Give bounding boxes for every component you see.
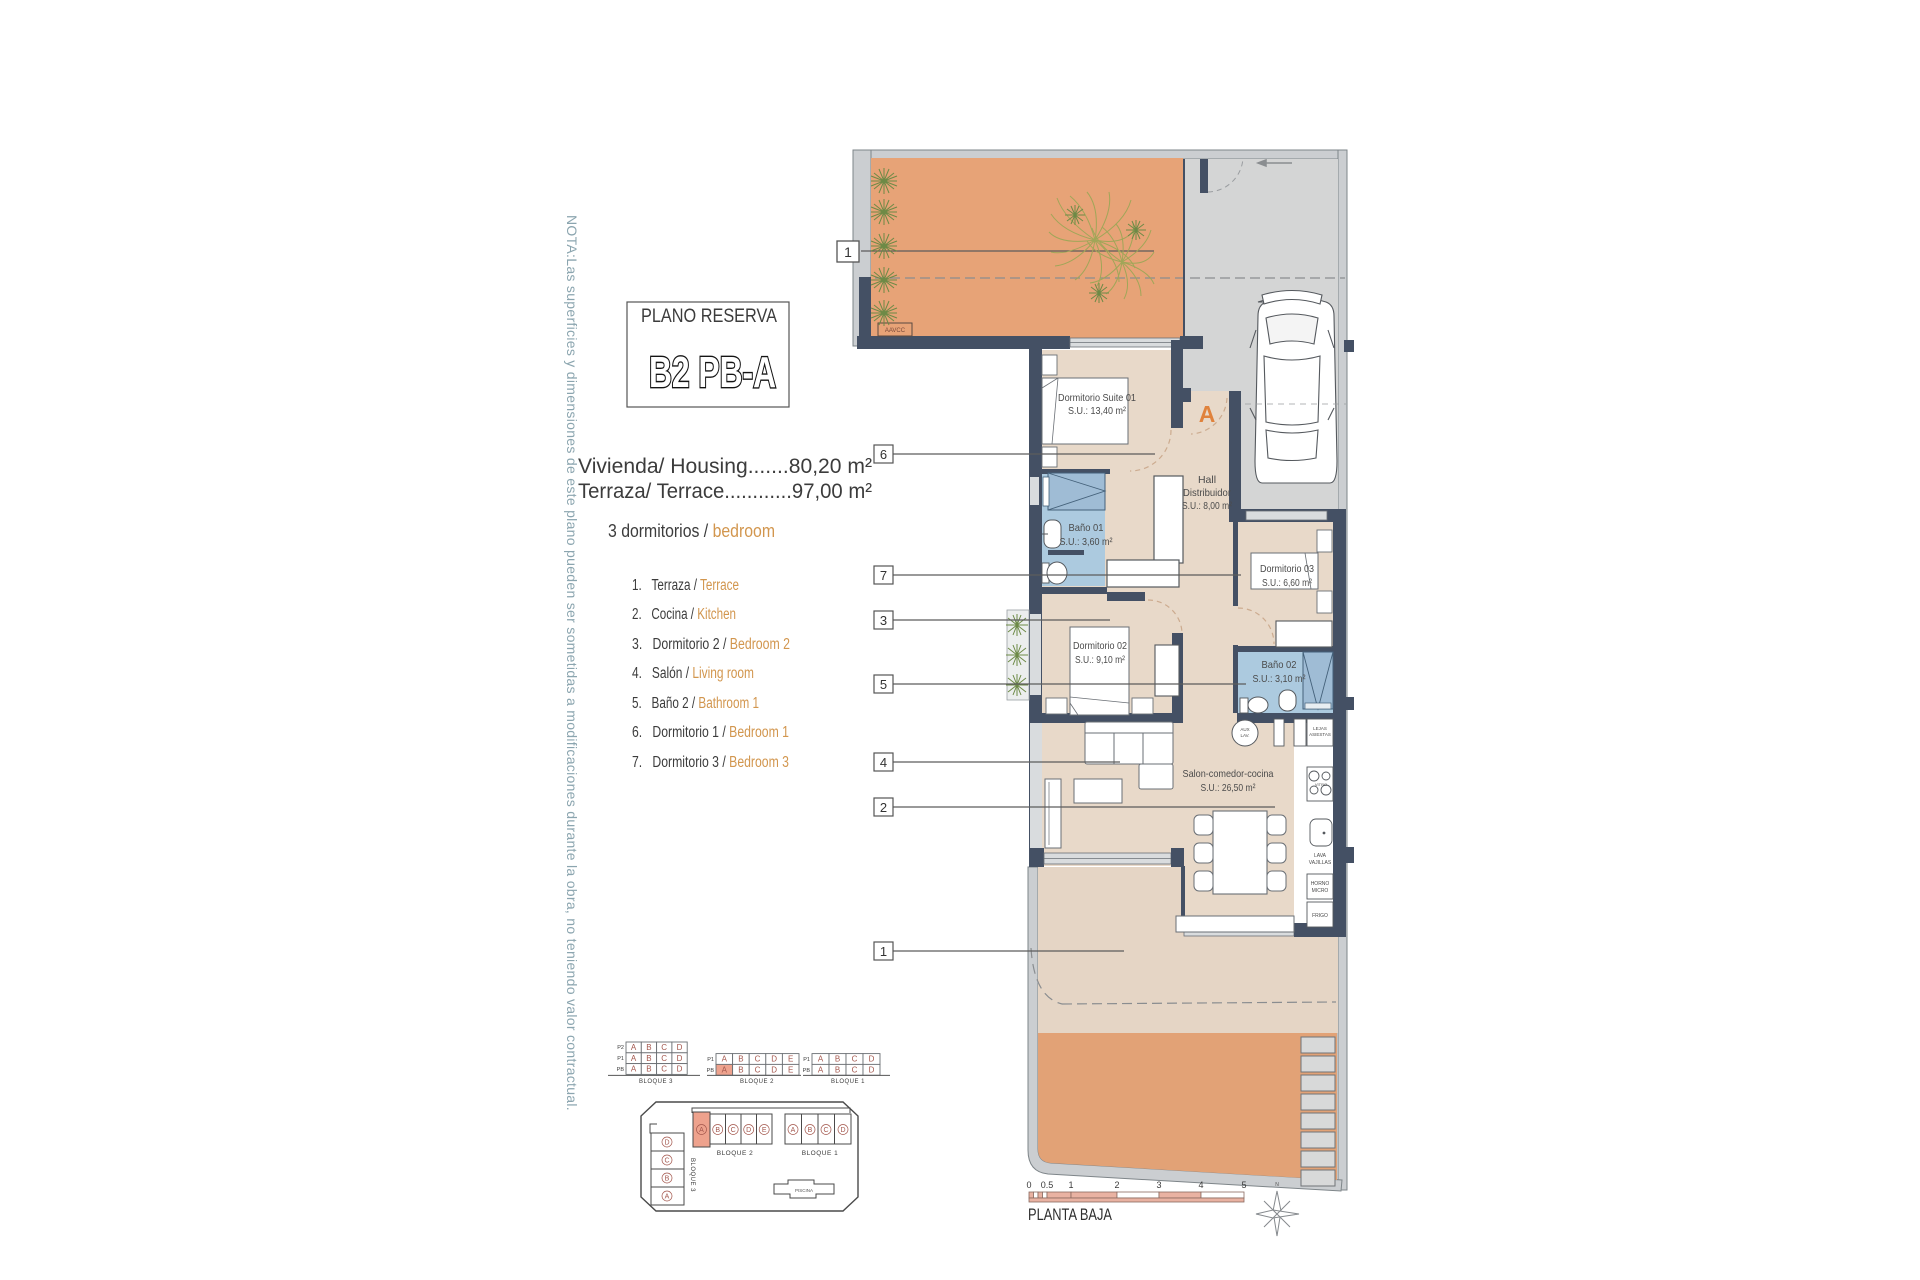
svg-text:5. Baño 2 / Bathroom 1: 5. Baño 2 / Bathroom 1: [632, 695, 759, 712]
svg-text:D: D: [677, 1043, 683, 1052]
svg-text:D: D: [664, 1140, 669, 1147]
svg-text:B: B: [738, 1065, 743, 1074]
svg-text:PB: PB: [707, 1068, 715, 1074]
svg-text:A: A: [699, 1127, 704, 1134]
svg-text:B: B: [665, 1176, 670, 1183]
svg-text:P1: P1: [617, 1056, 624, 1062]
svg-text:VAJILLAS: VAJILLAS: [1309, 860, 1332, 866]
svg-text:PLANTA BAJA: PLANTA BAJA: [1028, 1205, 1112, 1224]
svg-text:D: D: [677, 1065, 683, 1074]
svg-text:S.U.: 13,40 m²: S.U.: 13,40 m²: [1068, 405, 1126, 417]
svg-text:7. Dormitorio 3 / Bedroom 3: 7. Dormitorio 3 / Bedroom 3: [632, 754, 789, 771]
svg-text:PISCINA: PISCINA: [795, 1188, 813, 1193]
svg-text:LEJAS: LEJAS: [1313, 726, 1327, 731]
svg-text:Baño 01: Baño 01: [1069, 522, 1104, 534]
svg-text:1: 1: [1068, 1180, 1073, 1190]
svg-text:Vivienda/ Housing.......80,20: Vivienda/ Housing.......80,20 m²: [578, 455, 872, 478]
svg-text:A: A: [631, 1054, 637, 1063]
svg-text:B: B: [835, 1065, 840, 1074]
svg-text:BLOQUE 1: BLOQUE 1: [802, 1150, 839, 1157]
svg-text:C: C: [661, 1065, 667, 1074]
svg-text:A: A: [631, 1065, 637, 1074]
svg-text:6: 6: [880, 447, 887, 462]
svg-text:B: B: [646, 1054, 651, 1063]
svg-text:Baño 02: Baño 02: [1262, 659, 1297, 671]
svg-text:S.U.: 8,00 m²: S.U.: 8,00 m²: [1182, 500, 1232, 512]
svg-text:5: 5: [880, 677, 887, 692]
svg-text:BLOQUE 1: BLOQUE 1: [831, 1079, 865, 1085]
svg-text:7: 7: [880, 568, 887, 583]
svg-text:PB: PB: [617, 1067, 625, 1073]
svg-text:D: D: [771, 1065, 777, 1074]
svg-text:S.U.: 9,10 m²: S.U.: 9,10 m²: [1075, 654, 1125, 666]
svg-text:Dormitorio 03: Dormitorio 03: [1260, 563, 1314, 575]
svg-text:0: 0: [1026, 1180, 1031, 1190]
svg-text:E: E: [788, 1065, 793, 1074]
svg-text:LAVA: LAVA: [1314, 853, 1327, 859]
svg-text:AUX: AUX: [1240, 727, 1249, 732]
svg-text:C: C: [731, 1127, 736, 1134]
svg-text:4. Salón / Living room: 4. Salón / Living room: [632, 665, 754, 682]
svg-text:A: A: [1199, 401, 1216, 427]
svg-text:A: A: [818, 1055, 824, 1064]
svg-text:FRIGO: FRIGO: [1312, 913, 1328, 919]
svg-text:S.U.: 6,60 m²: S.U.: 6,60 m²: [1262, 577, 1312, 589]
svg-text:PLANO RESERVA: PLANO RESERVA: [641, 306, 777, 327]
svg-text:A: A: [722, 1055, 728, 1064]
svg-text:Dormitorio Suite 01: Dormitorio Suite 01: [1058, 392, 1136, 404]
svg-text:AAVCC: AAVCC: [885, 328, 906, 334]
svg-text:PB: PB: [803, 1068, 811, 1074]
svg-text:B: B: [646, 1043, 651, 1052]
svg-text:S.U.: 26,50 m²: S.U.: 26,50 m²: [1201, 782, 1256, 794]
svg-text:D: D: [869, 1055, 875, 1064]
svg-text:HORNO: HORNO: [1311, 881, 1330, 887]
svg-text:BLOQUE 3: BLOQUE 3: [689, 1158, 695, 1192]
svg-text:MICRO: MICRO: [1312, 888, 1329, 894]
svg-text:Hall: Hall: [1198, 474, 1216, 486]
svg-text:E: E: [762, 1127, 767, 1134]
svg-text:C: C: [661, 1054, 667, 1063]
svg-text:C: C: [823, 1127, 828, 1134]
svg-text:S.U.: 3,60 m²: S.U.: 3,60 m²: [1060, 536, 1113, 548]
svg-text:BLOQUE 3: BLOQUE 3: [639, 1079, 673, 1085]
svg-text:0.5: 0.5: [1041, 1180, 1054, 1190]
svg-text:C: C: [661, 1043, 667, 1052]
svg-text:C: C: [852, 1055, 858, 1064]
svg-text:P1: P1: [803, 1057, 810, 1063]
svg-text:VITRO: VITRO: [1315, 782, 1327, 787]
svg-text:Dormitorio 02: Dormitorio 02: [1073, 640, 1127, 652]
svg-text:1. Terraza / Terrace: 1. Terraza / Terrace: [632, 577, 739, 594]
svg-text:2: 2: [1114, 1180, 1119, 1190]
svg-text:B: B: [808, 1127, 813, 1134]
svg-text:D: D: [771, 1055, 777, 1064]
svg-text:E: E: [788, 1055, 793, 1064]
svg-text:Salon-comedor-cocina: Salon-comedor-cocina: [1183, 768, 1274, 780]
svg-text:NOTA:Las superficies y dimensi: NOTA:Las superficies y dimensiones de es…: [564, 215, 580, 1111]
svg-text:6. Dormitorio 1 / Bedroom 1: 6. Dormitorio 1 / Bedroom 1: [632, 724, 789, 741]
svg-text:BLOQUE 2: BLOQUE 2: [740, 1079, 774, 1085]
svg-text:C: C: [852, 1065, 858, 1074]
svg-text:3: 3: [1156, 1180, 1161, 1190]
svg-text:5: 5: [1241, 1180, 1246, 1190]
svg-text:D: D: [869, 1065, 875, 1074]
svg-text:A: A: [665, 1194, 670, 1201]
svg-text:LAV.: LAV.: [1240, 733, 1249, 738]
svg-text:C: C: [755, 1055, 761, 1064]
svg-text:3 dormitorios / bedroom: 3 dormitorios / bedroom: [608, 521, 775, 541]
svg-text:B: B: [738, 1055, 743, 1064]
svg-text:A: A: [791, 1127, 796, 1134]
svg-text:4: 4: [880, 755, 887, 770]
svg-text:3: 3: [880, 613, 887, 628]
svg-text:A: A: [818, 1065, 824, 1074]
svg-text:D: D: [677, 1054, 683, 1063]
svg-text:D: D: [840, 1127, 845, 1134]
svg-text:BLOQUE 2: BLOQUE 2: [717, 1150, 754, 1157]
svg-text:D: D: [746, 1127, 751, 1134]
svg-text:3. Dormitorio 2 / Bedroom 2: 3. Dormitorio 2 / Bedroom 2: [632, 636, 790, 653]
svg-text:Distribuidor: Distribuidor: [1183, 487, 1231, 499]
svg-text:2. Cocina / Kitchen: 2. Cocina / Kitchen: [632, 606, 736, 623]
svg-text:A: A: [631, 1043, 637, 1052]
svg-text:P1: P1: [707, 1057, 714, 1063]
svg-text:1: 1: [880, 944, 887, 959]
svg-text:ASIESTAS: ASIESTAS: [1309, 732, 1331, 737]
svg-text:B: B: [715, 1127, 720, 1134]
svg-text:Terraza/ Terrace............97: Terraza/ Terrace............97,00 m²: [578, 480, 872, 503]
svg-text:C: C: [755, 1065, 761, 1074]
svg-text:N: N: [1275, 1182, 1279, 1188]
svg-text:S.U.: 3,10 m²: S.U.: 3,10 m²: [1253, 673, 1306, 685]
svg-text:A: A: [722, 1065, 728, 1074]
svg-text:2: 2: [880, 800, 887, 815]
svg-text:B2 PB-A: B2 PB-A: [649, 348, 776, 397]
svg-text:1: 1: [844, 244, 852, 260]
svg-text:B: B: [646, 1065, 651, 1074]
svg-text:B: B: [835, 1055, 840, 1064]
svg-text:4: 4: [1198, 1180, 1203, 1190]
svg-text:C: C: [664, 1158, 669, 1165]
svg-text:P2: P2: [617, 1045, 624, 1051]
